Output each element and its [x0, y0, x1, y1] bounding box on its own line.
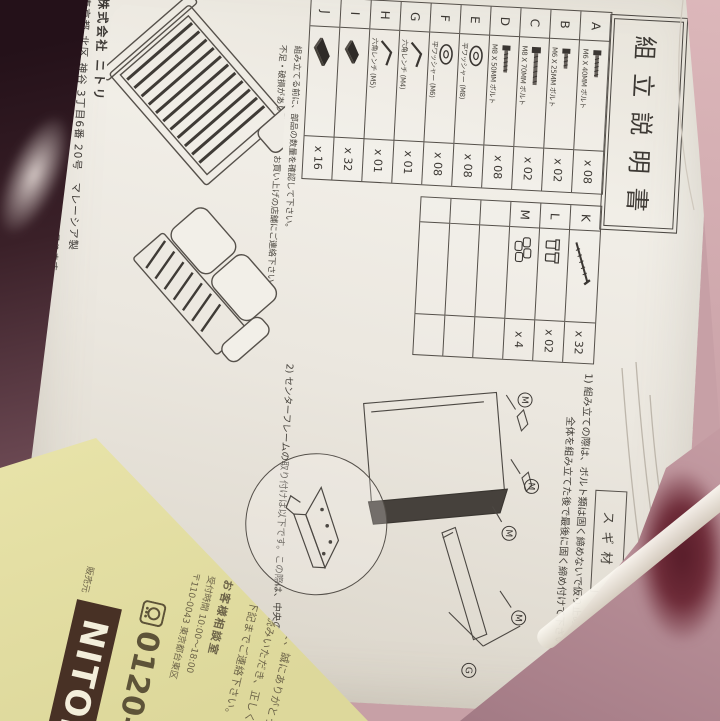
title-box: 組立説明書 [603, 18, 684, 229]
product-label: スギ材 [598, 511, 620, 572]
card-phone-number: 0120- [109, 627, 166, 721]
part-letter: H [370, 0, 400, 29]
part-letter: A [580, 11, 611, 41]
part-cell [475, 224, 509, 317]
part-icon [451, 232, 473, 314]
part-icon [510, 235, 532, 317]
part-cell [505, 226, 539, 319]
part-letter: D [490, 7, 520, 36]
part-letter: L [540, 204, 570, 229]
part-icon [571, 238, 593, 320]
part-letter: C [520, 8, 550, 37]
part-cell: 六角レンチ (M5) [365, 28, 400, 139]
part-qty: x 02 [533, 319, 564, 361]
part-qty: x 32 [563, 321, 595, 364]
part-qty: x 02 [542, 148, 573, 192]
card-seller-label: 販売元 [79, 565, 98, 594]
part-qty: x 16 [302, 135, 333, 179]
part-cell [415, 221, 449, 314]
part-icon [310, 34, 333, 134]
part-qty: x 08 [482, 144, 513, 188]
part-cell [445, 223, 479, 316]
photo-scene: 組立説明書 スギ材 1) 組み立ての際は、ボルト類は固く締めないで仮り止めにして… [0, 0, 720, 721]
part-icon [540, 237, 562, 319]
part-qty [413, 313, 444, 355]
part-cell: M8 X 70MM ボルト [514, 36, 549, 147]
part-qty [443, 315, 474, 357]
part-qty: x 08 [452, 143, 483, 187]
part-cell: 平ワッシャー (M6) [424, 32, 459, 143]
callout-m-2: M [525, 482, 535, 490]
part-letter [420, 197, 450, 222]
card-logo-row: 販売元 NITORI [24, 565, 130, 721]
part-qty: x 01 [362, 138, 393, 182]
part-qty: x 4 [503, 318, 534, 360]
callout-m-3: M [503, 529, 513, 537]
part-letter: K [570, 205, 601, 231]
nitori-logo: NITORI [37, 599, 121, 721]
parts-table-2: K x 32 L x 02 M x 4 [412, 196, 602, 364]
callout-m-1: M [519, 396, 529, 404]
part-cell: M6 X 25MM ボルト [544, 38, 579, 149]
part-cell: M6 X 40MM ボルト [574, 39, 610, 150]
part-cell: 六角レンチ (M4) [394, 30, 429, 141]
part-icon [340, 36, 363, 136]
part-letter: E [460, 5, 490, 34]
part-letter [480, 200, 510, 225]
step-2-number: 2) [283, 363, 294, 373]
part-letter: J [310, 0, 340, 27]
part-icon [480, 234, 502, 316]
part-letter [450, 199, 480, 224]
bed-frame-illustration [100, 0, 290, 199]
part-qty: x 01 [392, 140, 423, 184]
sofa-illustration [122, 191, 286, 374]
callout-m-4: M [512, 614, 522, 622]
callout-g: G [463, 667, 473, 675]
page-title: 組立説明書 [621, 21, 667, 227]
part-cell: M8 X 50MM ボルト [484, 35, 519, 146]
part-letter: M [510, 202, 540, 227]
part-letter: I [340, 0, 370, 28]
part-icon [421, 230, 443, 312]
parts-table: A M6 X 40MM ボルト x 08 B M6 X 25MM ボルト x 0… [301, 0, 612, 195]
part-cell [305, 25, 340, 136]
part-qty: x 08 [422, 141, 453, 185]
part-cell [565, 229, 600, 322]
part-qty: x 08 [572, 149, 604, 194]
part-letter: B [550, 10, 580, 39]
part-cell: 平ワッシャー (M8) [454, 33, 489, 144]
bracket-detail-drawing [268, 467, 364, 582]
part-cell [335, 27, 370, 138]
part-qty: x 02 [512, 146, 543, 190]
part-qty [473, 316, 504, 358]
part-qty: x 32 [332, 137, 363, 181]
part-letter: F [430, 4, 460, 33]
part-cell [535, 228, 569, 321]
step-1-number: 1) [582, 373, 594, 384]
part-letter: G [400, 2, 430, 31]
freedial-icon [139, 599, 168, 628]
